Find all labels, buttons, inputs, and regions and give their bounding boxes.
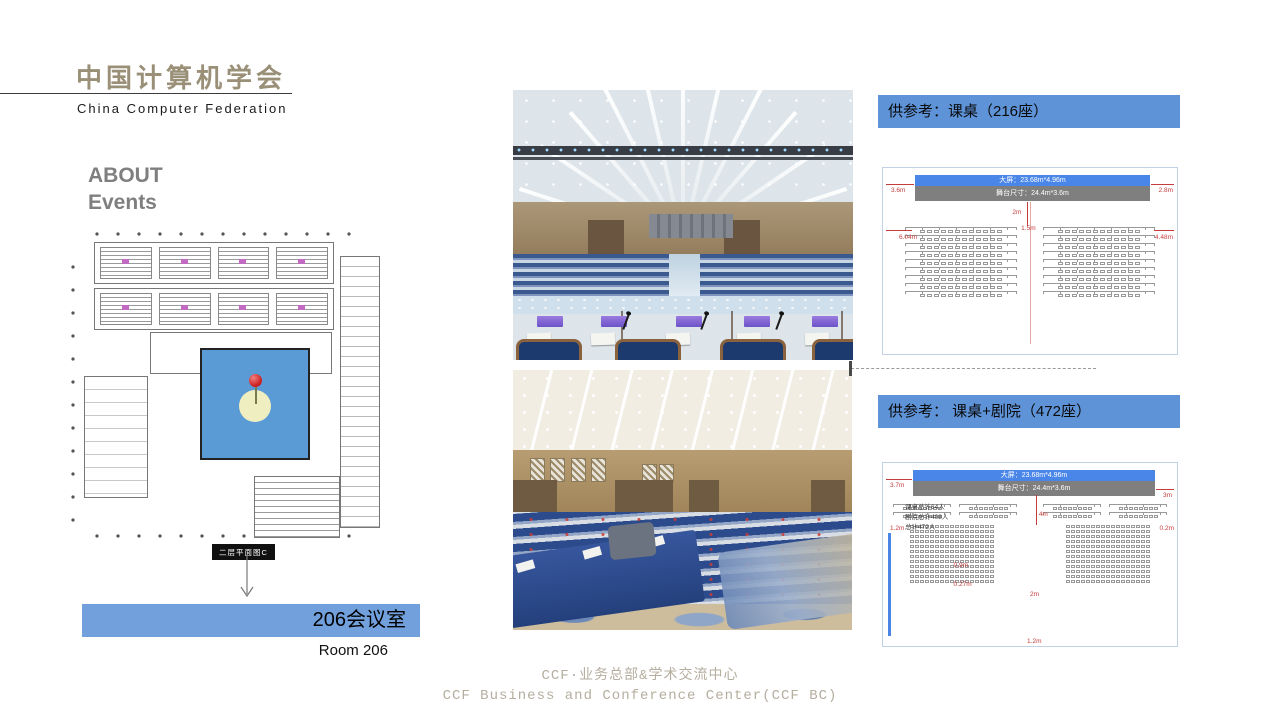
dimension-label: 2m: [1012, 209, 1021, 216]
theater-block-left: [891, 525, 1013, 585]
seat-cluster: [100, 293, 152, 325]
dimension-label: 4.48m: [1155, 234, 1173, 241]
wall-art: [550, 458, 565, 482]
slide-footer: CCF·业务总部&学术交流中心 CCF Business and Confere…: [0, 667, 1280, 706]
location-pin-icon: [249, 374, 262, 387]
chair: [607, 522, 656, 561]
chair: [516, 339, 582, 360]
name-card: [812, 316, 838, 327]
footer-line-cn: CCF·业务总部&学术交流中心: [0, 667, 1280, 687]
dimension-label: 1.2m: [1027, 638, 1041, 645]
desk-group: [1109, 504, 1167, 520]
plan-bottom-right-rooms: [254, 476, 340, 538]
seat-block-left: [905, 227, 1017, 299]
room-name-banner: 206会议室: [82, 604, 420, 637]
note-desks: 课桌总计64人: [905, 503, 948, 513]
chair: [615, 339, 681, 360]
door-opening: [615, 480, 673, 512]
stage: 大屏：23.68m*4.96m 舞台尺寸：24.4m*3.6m: [915, 175, 1150, 201]
plan-lecture-rooms-top: [94, 242, 334, 284]
logo-underline: [0, 93, 292, 94]
capacity-notes: 课桌总计64人 剧院总计408人 总计472人: [905, 503, 948, 533]
seat-cluster: [100, 247, 152, 279]
dimension-label: 3.6m: [891, 187, 905, 194]
desk-pair-right: [1043, 504, 1167, 520]
seating-diagram-classroom-theater: 大屏：23.68m*4.96m 舞台尺寸：24.4m*3.6m 3.7m 3m …: [882, 462, 1178, 647]
door-opening: [513, 480, 557, 512]
door-opening: [811, 480, 845, 512]
plan-left-rooms: [84, 376, 148, 498]
section-title: ABOUT Events: [88, 163, 163, 217]
theater-block-right: [1047, 525, 1169, 585]
seat-cluster: [218, 293, 270, 325]
center-aisle-line: [1030, 202, 1031, 344]
paper: [515, 559, 535, 573]
name-card: [537, 316, 563, 327]
stage-size-label: 舞台尺寸：24.4m*3.6m: [915, 186, 1150, 201]
name-card: [744, 316, 770, 327]
stage-screen-label: 大屏：23.68m*4.96m: [915, 175, 1150, 186]
door-opening: [588, 220, 624, 256]
stage-size-label: 舞台尺寸：24.4m*3.6m: [913, 481, 1155, 496]
section-title-line1: ABOUT: [88, 163, 163, 190]
stage-light-truss-lower: [513, 157, 853, 160]
note-total: 总计472人: [905, 523, 948, 533]
slide: 中国计算机学会 China Computer Federation ABOUT …: [0, 0, 1280, 720]
seating-diagram-classroom: 大屏：23.68m*4.96m 舞台尺寸：24.4m*3.6m 3.6m 2.8…: [882, 167, 1178, 355]
wall-art: [530, 458, 545, 482]
plan-axis-left: [69, 262, 77, 532]
chair: [812, 339, 853, 360]
ccf-logo-english: China Computer Federation: [77, 101, 287, 116]
wall-art: [591, 458, 606, 482]
footer-line-en: CCF Business and Conference Center(CCF B…: [0, 687, 1280, 707]
dimension-label: 3m: [1163, 492, 1172, 499]
dimension-line: [1156, 489, 1174, 490]
note-theater: 剧院总计408人: [905, 513, 948, 523]
dimension-label: 0.9m: [954, 562, 968, 569]
door-opening: [689, 480, 719, 512]
seat-cluster: [218, 247, 270, 279]
dimension-label: 6.04m: [899, 234, 917, 241]
dimension-line: [1027, 202, 1028, 226]
seat-cluster: [276, 293, 328, 325]
dimension-label: 0.2m: [1160, 525, 1174, 532]
down-arrow-icon: [237, 556, 257, 602]
wall-art: [571, 458, 586, 482]
seat-block-right: [1043, 227, 1155, 299]
ceiling-light-strips: [513, 370, 852, 450]
layout-banner-classroom-theater: 供参考： 课桌+剧院（472座）: [878, 395, 1180, 428]
dimension-line: [886, 479, 912, 480]
floor-plan: 二层平面图C: [66, 228, 390, 566]
dimension-line: [886, 230, 912, 231]
dimension-label: 2.8m: [1159, 187, 1173, 194]
photo-conference-room-back: [513, 370, 852, 630]
chair: [720, 339, 786, 360]
left-wall-bar: [888, 533, 891, 636]
dimension-label: 0.27m: [954, 581, 972, 588]
seat-cluster: [276, 247, 328, 279]
dashed-divider: [851, 368, 1096, 369]
ccf-logo-chinese: 中国计算机学会: [76, 58, 286, 95]
divider-tick: [849, 361, 852, 376]
stage-light-truss: [513, 146, 853, 155]
plan-lecture-rooms-second: [94, 288, 334, 330]
dimension-line: [1036, 495, 1037, 525]
wall-panel: [649, 214, 733, 238]
desk-group: [959, 504, 1017, 520]
section-title-line2: Events: [88, 190, 163, 217]
paper: [582, 546, 602, 560]
room-206-highlight: [200, 348, 310, 460]
dimension-line: [1151, 184, 1174, 185]
theater-section: [883, 525, 1177, 585]
plan-axis-top: [92, 230, 368, 238]
dimension-label: 1.5m: [1021, 225, 1035, 232]
dimension-line: [886, 184, 914, 185]
plan-right-wing: [340, 256, 380, 528]
dimension-label: 4m: [1039, 511, 1048, 518]
room-name-english: Room 206: [82, 642, 420, 659]
dimension-line: [1154, 230, 1174, 231]
center-aisle: [669, 254, 700, 298]
stage: 大屏：23.68m*4.96m 舞台尺寸：24.4m*3.6m: [913, 470, 1155, 496]
layout-banner-classroom: 供参考：课桌（216座）: [878, 95, 1180, 128]
photo-conference-room-front: [513, 90, 853, 360]
paper: [591, 333, 615, 346]
desk-group: [1043, 504, 1101, 520]
dimension-label: 3.7m: [890, 482, 904, 489]
seat-cluster: [159, 247, 211, 279]
dimension-label: 2m: [1030, 591, 1039, 598]
stage-screen-label: 大屏：23.68m*4.96m: [913, 470, 1155, 481]
dimension-label: 1.2m: [890, 525, 904, 532]
seat-cluster: [159, 293, 211, 325]
name-card: [676, 316, 702, 327]
